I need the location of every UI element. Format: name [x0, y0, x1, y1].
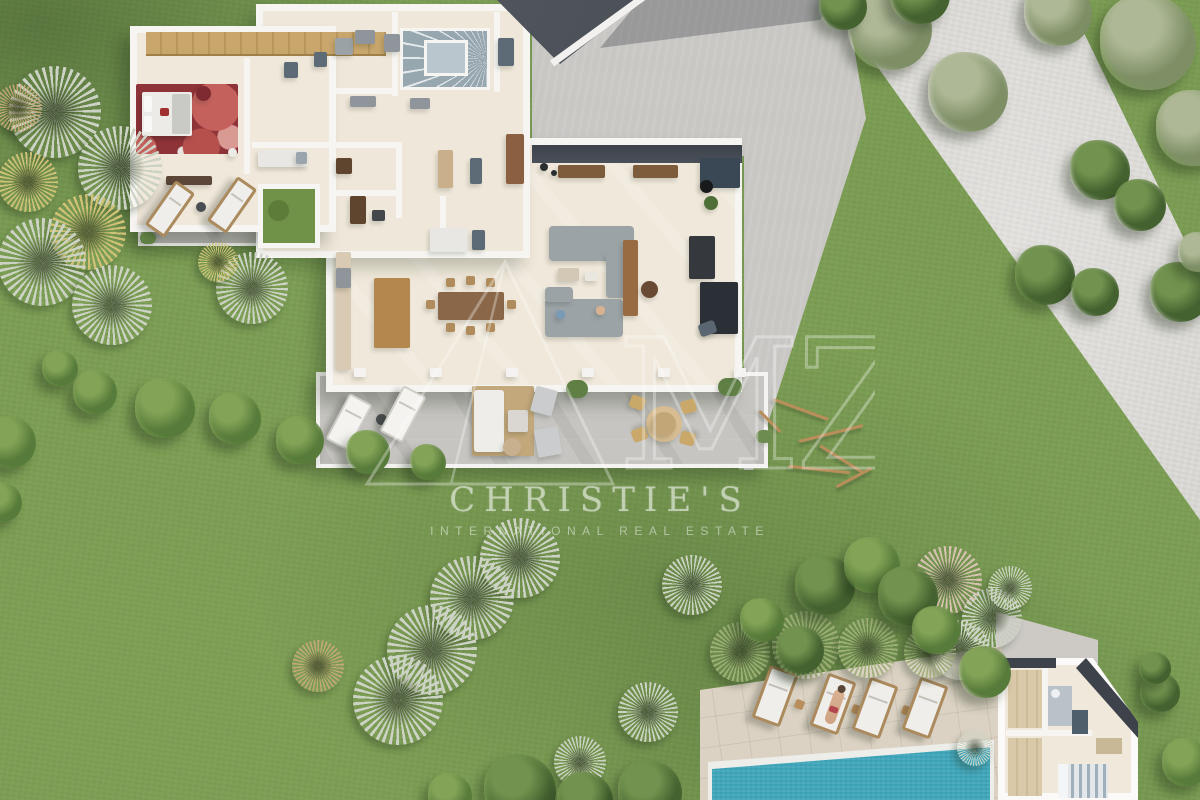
furniture-item: [354, 368, 366, 377]
furniture-item: [503, 438, 521, 456]
bed-pillow: [144, 116, 152, 132]
person-hair: [837, 684, 847, 694]
furniture-item: [472, 230, 485, 250]
shrub: [42, 350, 78, 386]
shrub: [135, 378, 195, 438]
pool-house-roof-strip: [1004, 658, 1056, 668]
interior-wall: [336, 190, 398, 196]
olive-tree: [928, 52, 1008, 132]
furniture-item: [540, 163, 548, 171]
furniture-item: [558, 165, 605, 178]
aerial-property-render: MZ CHRISTIE'S INTERNATIONAL REAL ESTATE: [0, 0, 1200, 800]
master-bed: [142, 92, 192, 136]
furniture-item: [284, 62, 298, 78]
furniture-item: [551, 170, 557, 176]
palm-plant: [957, 730, 993, 766]
interior-wall: [252, 142, 398, 148]
furniture-item: [196, 202, 206, 212]
furniture-item: [596, 306, 605, 315]
shrub: [346, 430, 390, 474]
furniture-item: [734, 368, 746, 377]
pool-house-cabinet: [1096, 738, 1122, 754]
furniture-item: [534, 426, 562, 458]
furniture-item: [641, 281, 658, 298]
lounger-fold-line: [230, 193, 243, 203]
furniture-item: [470, 158, 482, 184]
shrub: [209, 392, 261, 444]
pool-house-bed-pillow: [1058, 764, 1068, 798]
shrub: [912, 606, 960, 654]
furniture-item: [558, 268, 579, 281]
palm-plant: [618, 682, 678, 742]
furniture-item: [410, 98, 430, 109]
furniture-item: [430, 228, 468, 252]
olive-tree: [1100, 0, 1196, 90]
furniture-item: [446, 278, 455, 287]
furniture-item: [718, 378, 742, 396]
bed-throw: [172, 94, 190, 134]
furniture-item: [486, 323, 495, 332]
lounger-fold-line: [869, 695, 888, 703]
furniture-item: [438, 150, 453, 188]
pine-tree: [1139, 652, 1171, 684]
palm-plant: [72, 265, 152, 345]
furniture-item: [196, 86, 211, 101]
interior-wall: [244, 58, 250, 174]
furniture-item: [474, 390, 504, 452]
pool-house-wood-floor: [1008, 670, 1042, 728]
furniture-item: [582, 368, 594, 377]
lounger-fold-line: [399, 401, 416, 411]
pine-tree: [776, 626, 824, 674]
furniture-item: [350, 96, 376, 107]
shrub: [959, 646, 1011, 698]
inner-garden-patio: [258, 184, 320, 248]
palm-plant: [838, 618, 898, 678]
shrub: [740, 598, 784, 642]
furniture-item: [506, 134, 524, 184]
furniture-item: [652, 412, 676, 436]
furniture-item: [296, 152, 307, 164]
furniture-item: [689, 236, 715, 279]
person-swimsuit: [828, 705, 839, 714]
lounger-fold-line: [919, 695, 938, 703]
furniture-item: [430, 368, 442, 377]
furniture-item: [335, 38, 353, 55]
furniture-item: [228, 148, 237, 157]
shrub: [1162, 738, 1200, 786]
furniture-item: [486, 278, 495, 287]
staircase-core: [424, 40, 468, 76]
pine-tree: [1015, 245, 1075, 305]
furniture-item: [545, 287, 573, 302]
furniture-item: [374, 278, 410, 348]
furniture-item: [556, 310, 565, 319]
furniture-item: [384, 34, 400, 52]
palm-plant: [988, 566, 1032, 610]
furniture-item: [336, 158, 352, 174]
lounger-fold-line: [168, 197, 181, 207]
palm-plant: [0, 152, 58, 212]
furniture-item: [507, 300, 516, 309]
furniture-item: [633, 165, 678, 178]
furniture-item: [355, 30, 375, 44]
furniture-item: [426, 300, 435, 309]
interior-wall: [396, 142, 402, 218]
furniture-item: [566, 380, 588, 398]
furniture-item: [314, 52, 327, 67]
pool-house-sink: [1051, 689, 1060, 698]
furniture-item: [350, 196, 366, 224]
furniture-item: [446, 323, 455, 332]
furniture-item: [498, 38, 514, 66]
furniture-item: [466, 276, 475, 285]
palm-plant: [353, 655, 443, 745]
furniture-item: [700, 180, 713, 193]
furniture-item: [438, 292, 504, 320]
furniture-item: [336, 268, 351, 288]
bed-accent-pillow: [160, 108, 169, 116]
bed-pillow: [144, 96, 152, 112]
interior-wall: [336, 88, 396, 94]
furniture-item: [623, 240, 638, 316]
lounger-fold-line: [345, 409, 362, 419]
pool-house-shower: [1072, 710, 1088, 734]
palm-plant: [198, 242, 238, 282]
furniture-item: [466, 326, 475, 335]
furniture-item: [658, 368, 670, 377]
furniture-item: [756, 430, 772, 443]
pine-tree: [1071, 268, 1119, 316]
interior-wall: [392, 12, 398, 96]
shrub: [73, 370, 117, 414]
furniture-item: [508, 410, 528, 432]
pine-tree: [1114, 179, 1166, 231]
lounger-fold-line: [769, 683, 788, 691]
furniture-item: [585, 272, 598, 281]
palm-plant: [662, 555, 722, 615]
furniture-item: [372, 210, 385, 221]
shrub: [410, 444, 446, 480]
shrub: [276, 416, 324, 464]
furniture-item: [140, 232, 156, 244]
palm-plant: [292, 640, 344, 692]
furniture-item: [704, 196, 718, 210]
furniture-item: [506, 368, 518, 377]
pool-house-wood-floor: [1008, 738, 1042, 796]
